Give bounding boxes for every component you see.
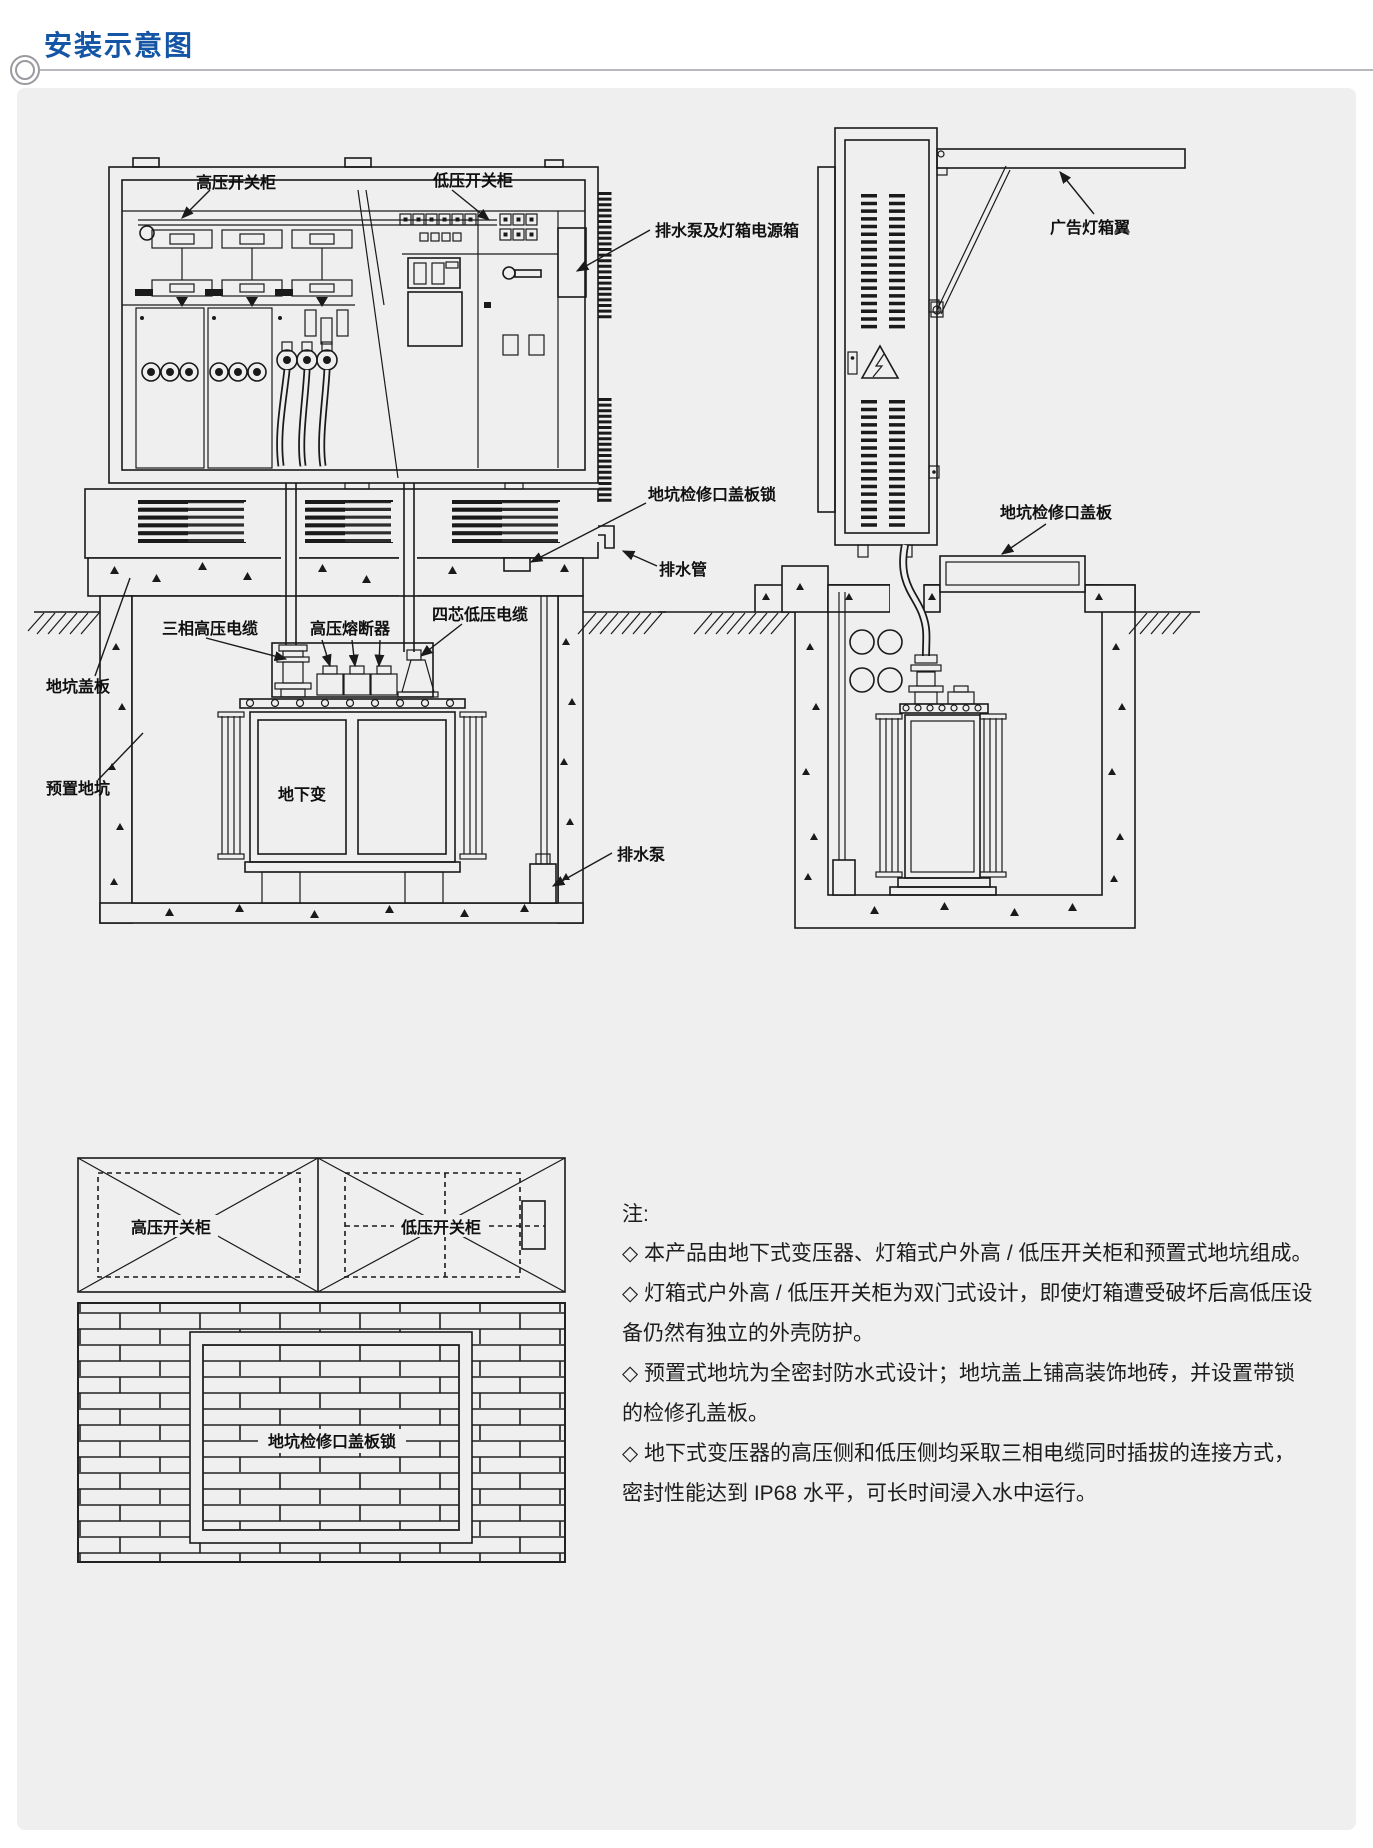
label-ad-lightbox-wing: 广告灯箱翼: [1050, 218, 1130, 237]
catalog-page: 安装示意图: [0, 0, 1373, 1848]
label-hv-fuse: 高压熔断器: [310, 619, 391, 638]
note-item: ◇ 地下式变压器的高压侧和低压侧均采取三相电缆同时插拔的连接方式，密封性能达到 …: [622, 1434, 1314, 1514]
label-pump-power-box: 排水泵及灯箱电源箱: [655, 221, 799, 240]
content-panel: [17, 88, 1356, 1830]
note-item: ◇ 灯箱式户外高 / 低压开关柜为双门式设计，即使灯箱遭受破坏后高低压设备仍然有…: [622, 1274, 1314, 1354]
note-item: ◇ 预置式地坑为全密封防水式设计；地坑盖上铺高装饰地砖，并设置带锁的检修孔盖板。: [622, 1354, 1314, 1434]
label-three-phase-hv-cable: 三相高压电缆: [162, 619, 258, 638]
notes-block: 注: ◇ 本产品由地下式变压器、灯箱式户外高 / 低压开关柜和预置式地坑组成。 …: [622, 1196, 1314, 1514]
label-lv-cabinet: 低压开关柜: [432, 171, 513, 190]
label-pit-cover: 地坑盖板: [46, 677, 111, 696]
label-underground-transformer: 地下变: [278, 785, 326, 804]
label-pit-access-cover-lock: 地坑检修口盖板锁: [648, 485, 776, 504]
installation-schematic: 高压开关柜 低压开关柜 排水泵及灯箱电源箱 地坑检修口盖板锁 排水管 地坑盖板 …: [0, 0, 1373, 1848]
plan-label-lv-cabinet: 低压开关柜: [400, 1218, 481, 1237]
note-item: ◇ 本产品由地下式变压器、灯箱式户外高 / 低压开关柜和预置式地坑组成。: [622, 1234, 1314, 1274]
plan-label-pit-access-cover-lock: 地坑检修口盖板锁: [268, 1432, 396, 1451]
notes-heading: 注:: [622, 1196, 1314, 1234]
label-precast-pit: 预置地坑: [46, 779, 110, 798]
label-pit-access-cover: 地坑检修口盖板: [1000, 503, 1113, 522]
plan-label-hv-cabinet: 高压开关柜: [131, 1218, 211, 1237]
label-drain-pump: 排水泵: [617, 845, 665, 864]
label-drain-pipe: 排水管: [659, 560, 707, 579]
label-hv-cabinet: 高压开关柜: [196, 173, 276, 192]
label-four-core-lv-cable: 四芯低压电缆: [432, 605, 528, 624]
